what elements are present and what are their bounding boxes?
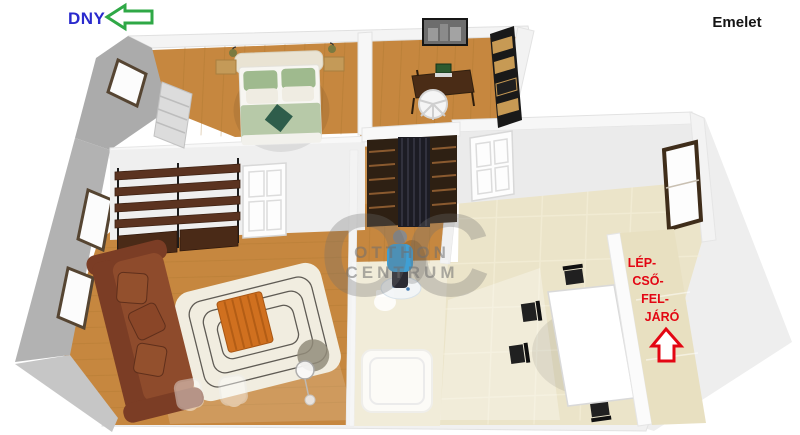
bedroom-door	[243, 163, 286, 238]
nightstand-right	[324, 57, 344, 71]
staircase-label-line-1: LÉP-	[628, 255, 656, 270]
floor-title: Emelet	[712, 14, 761, 31]
dining-window	[664, 142, 701, 229]
ghost-chair-2	[218, 374, 248, 407]
compass-arrow-icon	[107, 6, 152, 29]
floorplan-render: OC OTTHON CENTRUM DNY Emelet LÉP- CSŐ- F…	[0, 0, 800, 435]
watermark-name-line2: CENTRUM	[346, 263, 459, 282]
wall-picture	[423, 19, 467, 45]
nightstand-left	[216, 60, 236, 74]
watermark: OC OTTHON CENTRUM	[320, 190, 488, 322]
ghost-chair-1	[174, 378, 204, 411]
laptop	[435, 64, 452, 77]
compass-label: DNY	[68, 9, 106, 28]
floorplan-svg: OC OTTHON CENTRUM DNY Emelet LÉP- CSŐ- F…	[0, 0, 800, 435]
watermark-name-line1: OTTHON	[354, 243, 450, 262]
dining-chair	[521, 301, 543, 323]
staircase-label-line-4: JÁRÓ	[645, 309, 680, 324]
compass: DNY	[68, 6, 152, 29]
dining-chair	[563, 264, 585, 286]
staircase-label-line-3: FEL-	[641, 292, 669, 306]
dining-chair	[509, 343, 531, 365]
bed	[232, 50, 331, 153]
staircase-label-line-2: CSŐ-	[632, 273, 663, 288]
dining-chair	[589, 401, 611, 423]
